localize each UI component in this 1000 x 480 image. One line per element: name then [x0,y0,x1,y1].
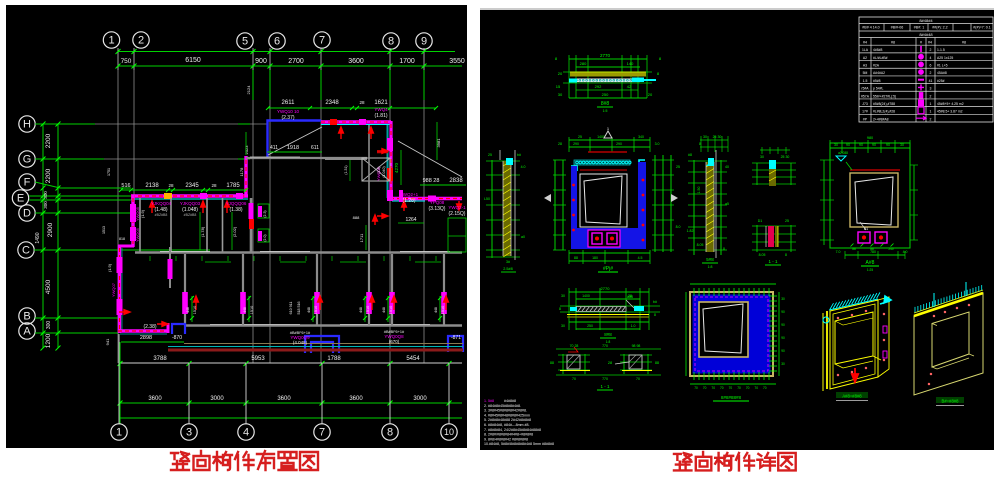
svg-text:90: 90 [781,310,785,314]
svg-text:2900: 2900 [47,222,54,237]
svg-text:2200: 2200 [45,168,52,183]
svg-text:A25 1x125: A25 1x125 [937,56,953,60]
svg-text:1700: 1700 [399,58,415,65]
svg-text:90: 90 [781,336,785,340]
svg-text:6: 6 [274,36,280,48]
svg-text:A2: A2 [863,56,867,60]
svg-text:3788: 3788 [153,356,167,362]
svg-text:2838: 2838 [449,178,463,184]
svg-text:9: 9 [421,36,427,48]
svg-text:(3.13Q): (3.13Q) [429,206,446,212]
svg-text:2023: 2023 [244,145,249,155]
svg-text:55#/+#27#L(:5): 55#/+#27#L(:5) [873,94,896,98]
svg-text:610 911: 610 911 [289,302,293,315]
svg-text:C: C [22,245,30,257]
svg-text:6150: 6150 [185,57,201,64]
svg-text:-870: -870 [172,335,182,341]
svg-text:2770: 2770 [601,286,611,291]
svg-text:A: A [23,326,31,338]
svg-text:280: 280 [580,61,587,66]
svg-text:900: 900 [255,58,267,65]
svg-text:(1.31): (1.31) [344,165,348,174]
svg-text:YWQ2-1: YWQ2-1 [448,205,466,210]
svg-text:2611: 2611 [282,100,296,106]
svg-text:250: 250 [602,92,609,97]
svg-text:1.0: 1.0 [631,324,636,328]
svg-text:H: H [23,119,31,131]
svg-text:#8: #8 [891,41,895,45]
svg-text:88: 88 [550,361,554,365]
svg-text:(1.78): (1.78) [200,226,205,237]
svg-text:448: 448 [307,307,311,313]
svg-text:F: F [24,177,31,189]
svg-text:8.05: 8.05 [697,243,704,247]
svg-text:980: 980 [867,136,873,140]
svg-text:1: 1 [930,102,932,106]
svg-text:4.5: 4.5 [638,256,643,260]
svg-text:70: 70 [737,386,741,390]
svg-text:8#8: 8#8 [601,101,610,107]
svg-text:70: 70 [711,386,715,390]
svg-text:1510: 1510 [441,306,445,314]
svg-text:941: 941 [105,338,110,345]
svg-text:#5#8: #5#8 [873,79,881,83]
svg-text:4. #8#45#8#48#8#8#425mm: 4. #8#45#8#48#8#8#425mm [484,413,530,417]
svg-text:300: 300 [43,191,48,199]
svg-text:3000: 3000 [413,396,427,402]
svg-text:3#: 3# [506,260,510,264]
svg-text:7: 7 [319,427,325,439]
svg-text:45#8.5+ 3.87 m2: 45#8.5+ 3.87 m2 [937,110,963,114]
svg-text:140: 140 [627,61,634,66]
svg-text:8: 8 [785,253,787,257]
svg-text:8#8#88#8: 8#8#88#8 [721,395,742,400]
svg-text:780: 780 [870,250,876,254]
svg-text:7: 7 [319,35,325,47]
svg-text:41: 41 [929,79,933,83]
svg-text:B#=#8#8: B#=#8#8 [942,399,960,404]
svg-text:2: 2 [930,94,932,98]
svg-text:988 28: 988 28 [423,178,440,184]
svg-text:88: 88 [574,256,578,260]
svg-text:240: 240 [888,247,894,251]
svg-text:28: 28 [628,294,632,298]
svg-text:8: 8 [388,36,394,48]
svg-text:88: 88 [655,361,659,365]
svg-text:8#48#4: 8#48#4 [919,18,933,23]
svg-text:3600: 3600 [277,396,291,402]
svg-text:(2.37): (2.37) [281,115,294,121]
svg-text:25: 25 [676,165,680,169]
svg-text:1-1.5: 1-1.5 [937,48,945,52]
svg-text:28: 28 [168,183,174,188]
svg-text:#BZ#B8: #BZ#B8 [184,213,197,217]
svg-text:290: 290 [573,142,579,146]
svg-text:2348: 2348 [325,100,339,106]
svg-text:2: 2 [930,48,932,52]
svg-text:770: 770 [602,344,608,348]
svg-text:8#8: 8#8 [604,332,612,337]
svg-text:#25#: #25# [937,79,945,83]
svg-text:1490: 1490 [35,232,41,243]
svg-text:YPQ08: YPQ08 [430,200,445,205]
svg-text:8: 8 [654,313,656,317]
svg-text:25 30: 25 30 [713,135,722,139]
svg-text:1510: 1510 [314,306,318,314]
svg-text:1751: 1751 [107,168,111,176]
svg-text:YWQ10 10: YWQ10 10 [277,109,300,114]
svg-text:#BZ#B8: #BZ#B8 [155,213,168,217]
svg-text:448: 448 [243,307,247,313]
svg-text:2. #84#8#45#8#8#4#8.: 2. #84#8#45#8#8#4#8. [484,404,521,408]
svg-text:G: G [23,154,32,166]
svg-text:(1.8): (1.8) [377,166,381,173]
svg-text:1510: 1510 [250,306,254,314]
svg-text:28: 28 [359,100,365,105]
svg-text:L50: L50 [484,197,490,201]
svg-text:818: 818 [119,237,125,241]
svg-text:#L#8L2(4),#28: #L#8L2(4),#28 [873,110,895,114]
svg-text:6. #8#84#8, #84#---8mm #8.: 6. #8#84#8, #84#---8mm #8. [484,423,530,427]
svg-text:#B/#-06: #B/#-06 [891,26,904,30]
svg-text:611: 611 [311,145,319,151]
svg-text:292: 292 [595,84,602,89]
svg-text:2345: 2345 [185,183,199,189]
svg-text:45A#8: 45A#8 [937,71,947,75]
svg-text:B: B [23,311,30,323]
svg-text:(1.38): (1.38) [229,207,242,213]
svg-text:28: 28 [211,183,217,188]
svg-text:45#8+5+ 4.25 m2: 45#8+5+ 4.25 m2 [937,102,964,106]
svg-text:D: D [23,208,31,220]
svg-text:5454: 5454 [406,356,420,362]
svg-text:98 98: 98 98 [632,344,641,348]
svg-text:448: 448 [382,307,386,313]
svg-text:20: 20 [648,92,653,97]
svg-text:1 - 1: 1 - 1 [768,259,778,264]
svg-text:8. 2#8#/#8#8#84#4#8+#8#8#8: 8. 2#8#/#8#8#84#4#8+#8#8#8 [484,433,533,437]
svg-text:#8: #8 [688,153,692,157]
svg-text:411: 411 [270,145,278,151]
svg-text:30: 30 [900,143,904,147]
svg-text:##(#): 2.2: ##(#): 2.2 [932,26,947,30]
svg-text:4#8#8: 4#8#8 [873,48,883,52]
svg-text:b#: b# [517,153,521,157]
svg-text:YWQ05: YWQ05 [135,227,140,242]
svg-text:25: 25 [578,135,582,139]
svg-text:#1 L+5: #1 L+5 [937,64,948,68]
svg-text:a2.088: a2.088 [838,151,848,155]
svg-text:3981: 3981 [436,138,441,148]
svg-text:1.82: 1.82 [687,229,694,233]
svg-text:4: 4 [243,427,249,439]
svg-text:70: 70 [763,386,767,390]
svg-text:1510: 1510 [366,306,370,314]
svg-text:448: 448 [359,307,363,313]
svg-text:1510: 1510 [389,306,393,314]
svg-text:1:25: 1:25 [867,268,873,272]
svg-text:25: 25 [488,153,492,157]
svg-text:5#8: 5#8 [706,257,714,262]
svg-text:#8: #8 [962,41,966,45]
svg-text:250: 250 [587,324,593,328]
svg-text:15: 15 [556,84,561,89]
svg-text:20: 20 [558,71,563,76]
svg-text:5953: 5953 [251,356,265,362]
svg-text:3000: 3000 [210,396,224,402]
svg-text:30: 30 [834,143,838,147]
svg-text:1621: 1621 [374,100,388,106]
svg-text:1513: 1513 [102,226,106,234]
svg-text:8.05: 8.05 [759,253,766,257]
svg-text:8: 8 [387,427,393,439]
svg-text:(2.15Q): (2.15Q) [449,211,466,217]
svg-text:750: 750 [121,58,132,65]
svg-text:2770: 2770 [600,53,611,58]
svg-text:b#: b# [653,300,657,304]
svg-text:(1.28): (1.28) [402,198,415,204]
svg-text:4.0: 4.0 [521,165,526,169]
svg-text:90: 90 [859,143,863,147]
svg-text:70: 70 [636,377,640,381]
svg-text:90: 90 [781,349,785,353]
svg-text:(2.0): (2.0) [263,234,267,241]
svg-text:1.5: 1.5 [863,79,868,83]
svg-text:1.50: 1.50 [697,187,701,194]
svg-text:5: 5 [242,36,248,48]
svg-text:1785: 1785 [226,183,240,189]
svg-text:A#8=#8#8: A#8=#8#8 [842,394,862,399]
svg-text:2138: 2138 [145,183,159,189]
svg-text:A3: A3 [863,64,867,68]
svg-text:30: 30 [558,92,563,97]
svg-text:E: E [17,193,24,205]
svg-text:3600: 3600 [348,58,364,65]
svg-text:#4: #4 [928,41,932,45]
svg-text:#4: #4 [863,41,867,45]
svg-text:70: 70 [703,386,707,390]
svg-text:2700: 2700 [288,58,304,65]
svg-text:#2A: #2A [873,64,880,68]
svg-text:30: 30 [561,294,565,298]
svg-text:3600: 3600 [349,396,363,402]
svg-text:A#8: A#8 [866,260,875,266]
svg-text:30: 30 [561,324,565,328]
svg-text:40: 40 [725,165,729,169]
svg-text:2.5#8: 2.5#8 [503,267,513,271]
svg-text:(670): (670) [389,339,400,344]
svg-text:70: 70 [572,377,576,381]
svg-text:4.0: 4.0 [903,250,908,254]
svg-text:#Pj#: #Pj# [603,266,613,272]
svg-text:10: 10 [444,427,454,437]
svg-text:p 54#L: p 54#L [873,87,883,91]
svg-text:3600: 3600 [148,396,162,402]
svg-text:340: 340 [638,135,644,139]
svg-text:2: 2 [930,71,932,75]
svg-text:2200: 2200 [45,133,52,148]
svg-text:A#4#A2: A#4#A2 [873,71,885,75]
svg-text:2+4#8#A8: 2+4#8#A8 [873,117,889,121]
svg-text:YJKQQ04: YJKQQ04 [151,201,172,206]
svg-text:(4.048): (4.048) [293,340,308,345]
svg-text:YWQ4: YWQ4 [374,107,388,112]
svg-text:448: 448 [434,307,438,313]
svg-text:180: 180 [592,256,598,260]
svg-text:70: 70 [720,386,724,390]
svg-text:25: 25 [785,219,789,223]
svg-text:290: 290 [616,142,622,146]
svg-text:YWQ07: YWQ07 [111,282,116,297]
svg-text:30: 30 [781,297,785,301]
svg-text:2898: 2898 [140,335,152,341]
svg-text:30: 30 [781,362,785,366]
svg-text:3. 3#8#45#8#8#8#42#8#8.: 3. 3#8#45#8#8#8#42#8#8. [484,409,527,413]
svg-text:4500: 4500 [45,279,52,294]
svg-text:1: 1 [108,35,114,47]
svg-text:(2.3): (2.3) [263,210,267,217]
svg-text:#(#)=7: 0.1: #(#)=7: 0.1 [973,26,990,30]
svg-text:300: 300 [46,321,52,330]
svg-text:516: 516 [121,183,130,189]
svg-text:1:8: 1:8 [708,265,713,269]
svg-text:1510: 1510 [193,306,197,314]
svg-text:#B# 4 14.0: #B# 4 14.0 [862,26,879,30]
svg-text:28: 28 [558,142,562,146]
svg-text:1:5: 1:5 [603,109,608,113]
svg-text:42: 42 [627,84,632,89]
svg-text:a0: a0 [521,235,525,239]
svg-text:70: 70 [754,386,758,390]
svg-text:10.#84#8, 5#8#/8#8#8#8#4#8 5m: 10.#84#8, 5#8#/8#8#8#8#4#8 5mm #8#8#8 [484,442,554,446]
svg-text:a5: a5 [725,202,729,206]
svg-text:90: 90 [872,143,876,147]
svg-text:#L/#L#B#: #L/#L#B# [873,56,888,60]
svg-text:YJKQQ03: YJKQQ03 [180,201,201,206]
svg-text:(1.81): (1.81) [374,113,387,119]
svg-text:888: 888 [353,215,360,220]
svg-text:9. 8#8/4#8#8#42 #8#8#8#8: 9. 8#8/4#8#8#42 #8#8#8#8 [484,437,528,441]
svg-text:#P: #P [863,117,868,121]
svg-text:6: 6 [930,64,932,68]
svg-text:1711: 1711 [359,233,364,242]
svg-text:(2.02): (2.02) [232,226,237,237]
svg-text:90: 90 [886,143,890,147]
svg-text:30: 30 [760,155,764,159]
svg-text:1788: 1788 [327,356,341,362]
svg-text:300: 300 [43,201,48,209]
svg-text:3550: 3550 [449,58,465,65]
svg-text:3: 3 [186,427,192,439]
svg-text:YJQQQ06: YJQQQ06 [226,201,247,206]
svg-text:448: 448 [186,307,190,313]
svg-text:30: 30 [703,135,707,139]
svg-text:D1: D1 [758,219,763,223]
svg-text:1178: 1178 [239,167,244,176]
svg-text:28: 28 [608,361,612,365]
svg-text:J73: J73 [862,102,868,106]
svg-text:1400: 1400 [582,294,590,298]
svg-text:#5#8(24),#788: #5#8(24),#788 [873,102,895,106]
svg-text:25 30: 25 30 [781,155,790,159]
svg-text:90: 90 [846,143,850,147]
svg-text:#4#8#8: #4#8#8 [504,399,516,403]
svg-text:17#: 17# [862,110,868,114]
svg-text:4: 4 [930,56,932,60]
svg-text:(1.9): (1.9) [107,263,112,272]
svg-text:2: 2 [138,35,144,47]
svg-text:1. 5#8: 1. 5#8 [484,399,494,403]
svg-text:8: 8 [559,307,561,311]
svg-text:3.0: 3.0 [655,142,660,146]
svg-text:(1.9): (1.9) [140,209,145,218]
svg-text:1: 1 [930,110,932,114]
svg-text:518 516: 518 516 [297,302,301,315]
svg-text:3: 3 [930,87,932,91]
svg-text:70: 70 [746,386,750,390]
svg-text:(1.040): (1.040) [382,166,386,177]
svg-text:1: 1 [116,427,122,439]
svg-text:7.0: 7.0 [836,250,841,254]
svg-text:70 28: 70 28 [570,344,579,348]
svg-text:#57A: #57A [861,94,870,98]
svg-text:5. 2#8#8#48#88 2#42#8#8#8: 5. 2#8#8#48#88 2#42#8#8#8 [484,418,531,422]
svg-text:(2.38): (2.38) [143,324,156,330]
svg-text:2: 2 [930,117,932,121]
svg-text:1200: 1200 [45,333,52,348]
svg-text:r5#A: r5#A [861,87,869,91]
svg-text:5M: 5M [863,71,868,75]
svg-text:1264: 1264 [405,217,416,223]
svg-text:1 - 1: 1 - 1 [600,384,610,389]
svg-text:88: 88 [852,247,856,251]
svg-text:8.0: 8.0 [676,225,681,229]
svg-text:1LA: 1LA [862,48,869,52]
svg-text:7. #8#8#84, 24/2#8#45#8#84#88: 7. #8#8#84, 24/2#8#45#8#84#88#8 [484,428,541,432]
svg-text:2124: 2124 [246,85,251,95]
svg-text:8: 8 [723,247,725,251]
svg-text:#: # [920,41,922,45]
svg-text:8#4#48: 8#4#48 [919,32,933,37]
svg-text:-871: -871 [451,335,461,341]
svg-text:70: 70 [729,386,733,390]
svg-text:770: 770 [602,377,608,381]
svg-text:4270: 4270 [394,162,399,173]
svg-text:70: 70 [694,386,698,390]
svg-text:1918: 1918 [287,145,299,151]
svg-text:#B#: 1: #B#: 1 [914,26,924,30]
svg-text:90: 90 [781,323,785,327]
